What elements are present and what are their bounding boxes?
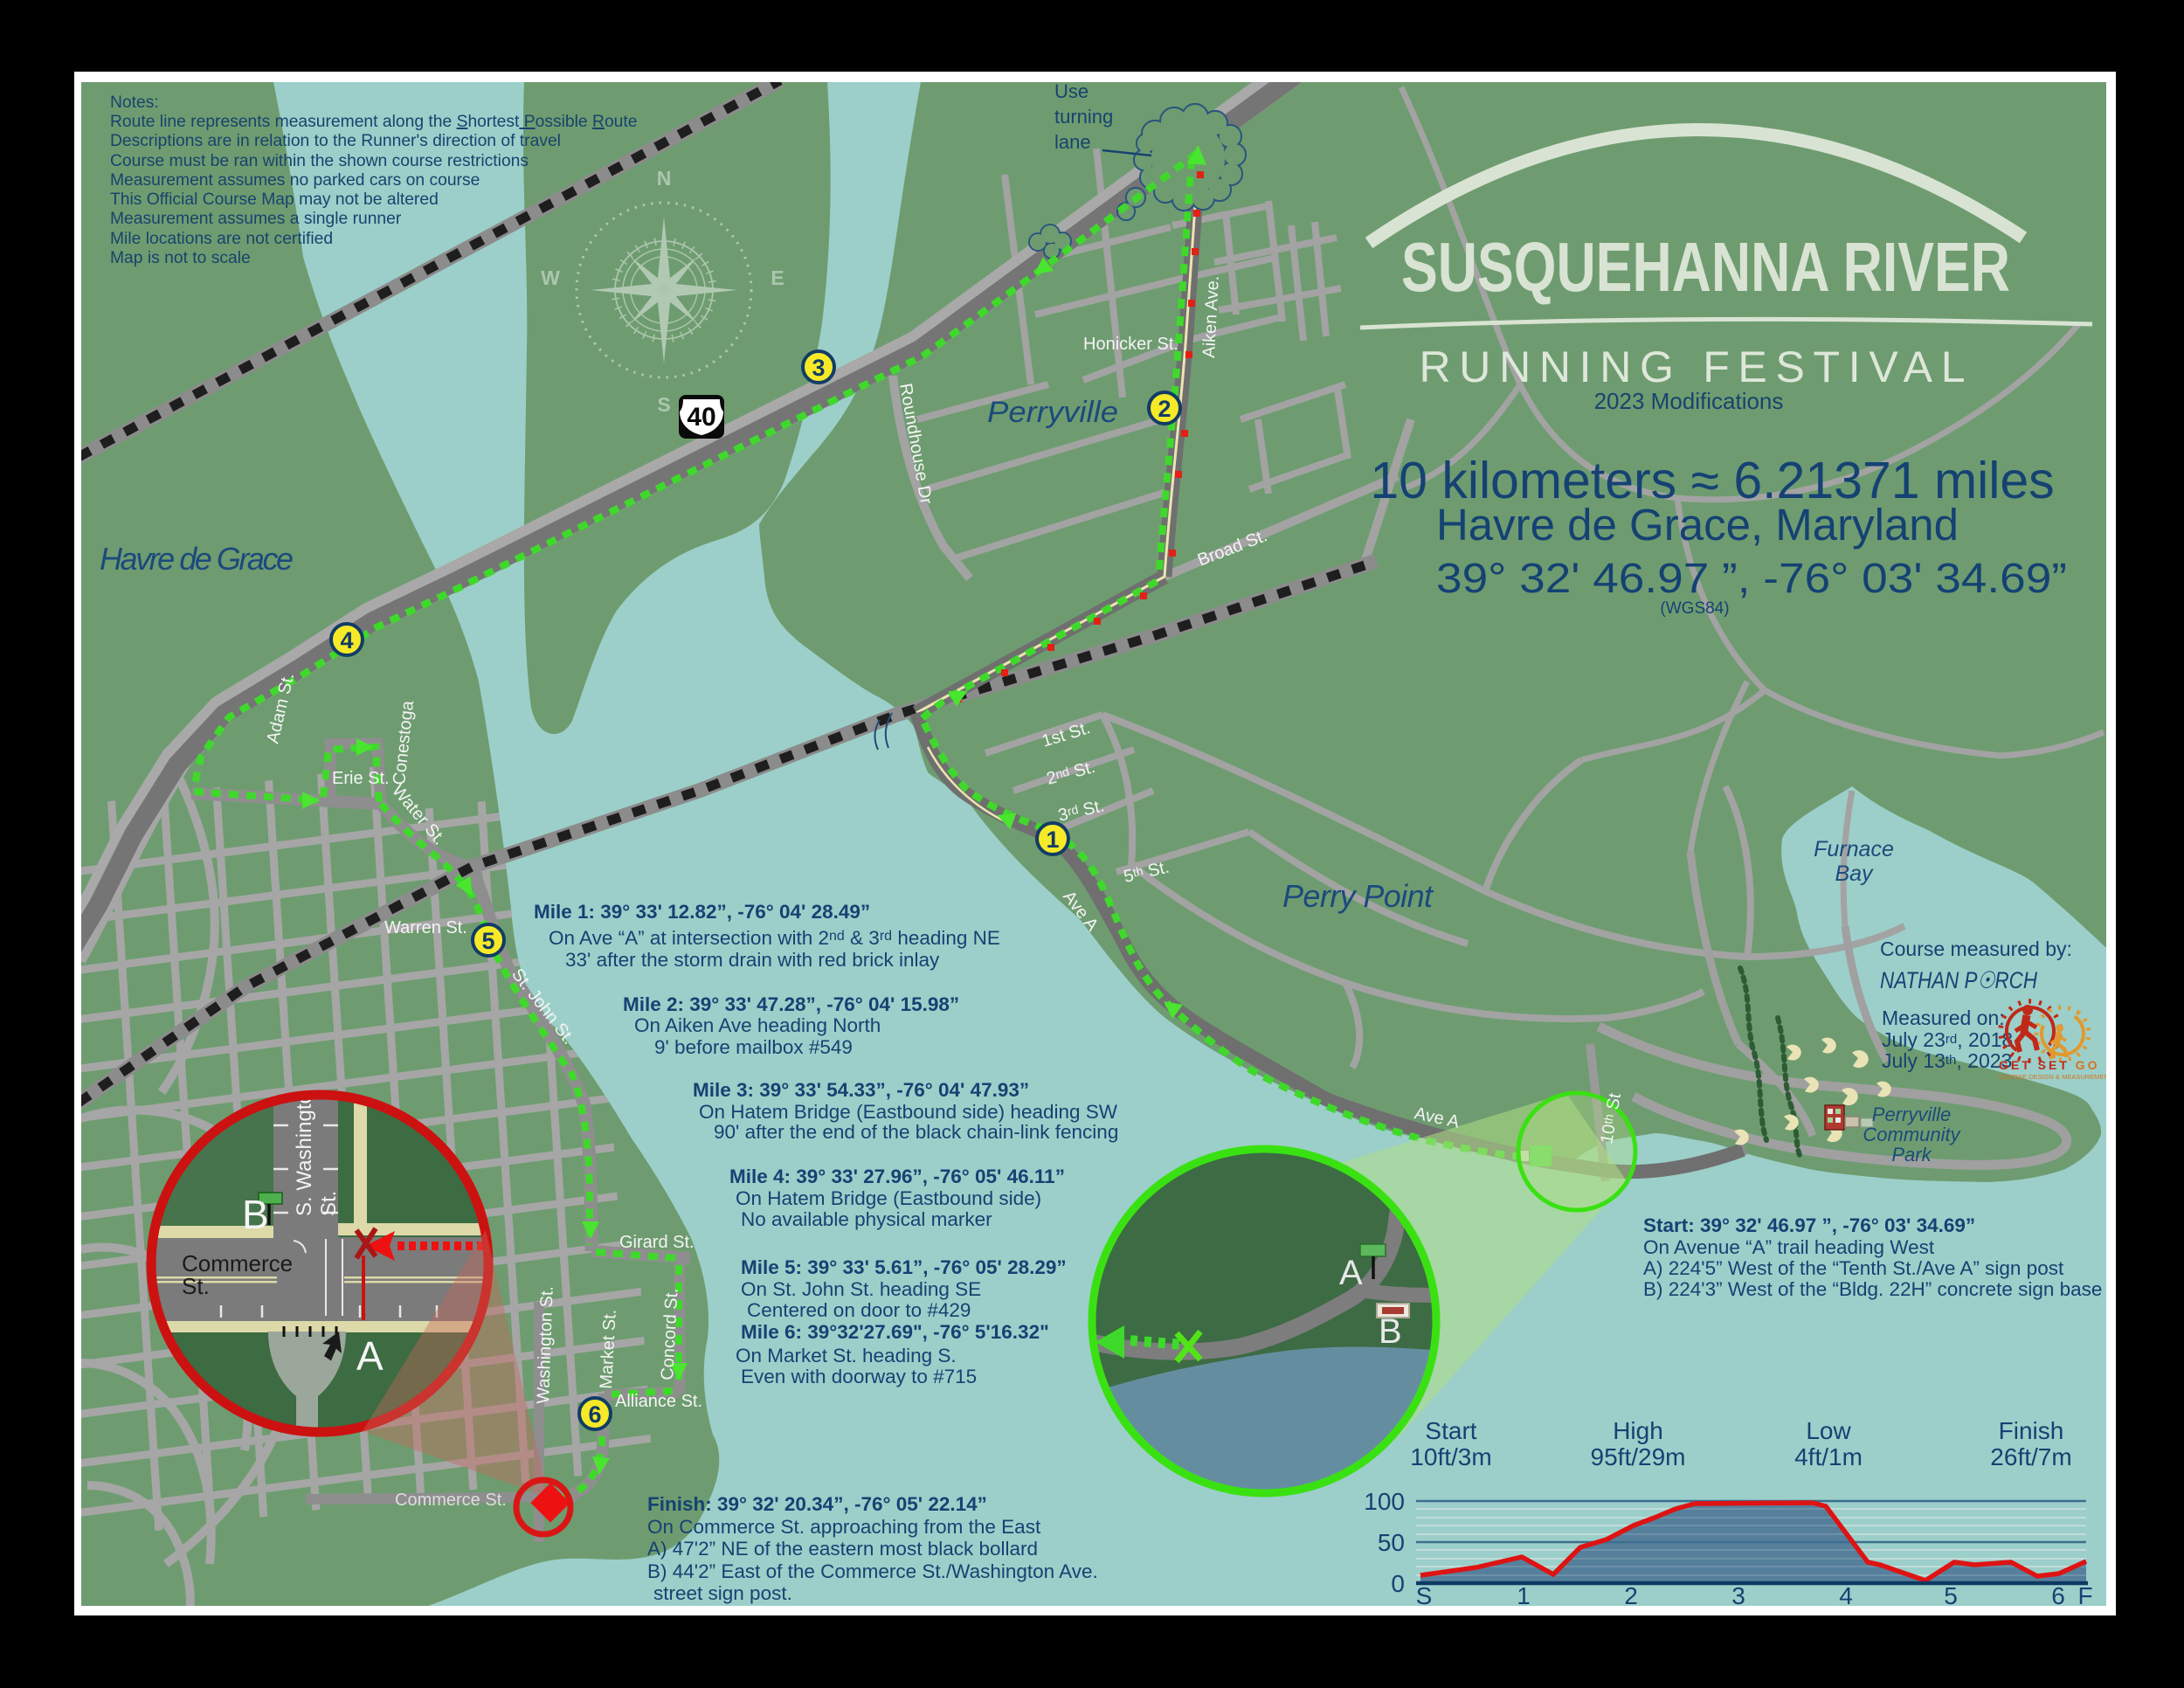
svg-text:W: W [541, 266, 560, 289]
svg-text:6: 6 [2051, 1582, 2065, 1609]
svg-text:1: 1 [1517, 1582, 1531, 1609]
svg-text:33' after the storm drain with: 33' after the storm drain with red brick… [565, 949, 940, 971]
svg-text:Finish: 39° 32' 20.34”, -76° 0: Finish: 39° 32' 20.34”, -76° 05' 22.14” [647, 1493, 987, 1515]
svg-text:On Hatem Bridge (Eastbound sid: On Hatem Bridge (Eastbound side) [736, 1187, 1041, 1209]
svg-text:Perryville: Perryville [1872, 1103, 1951, 1125]
svg-text:This Official Course Map may n: This Official Course Map may not be alte… [110, 190, 439, 209]
svg-text:2: 2 [1624, 1582, 1638, 1609]
svg-text:A) 47'2” NE of the eastern mos: A) 47'2” NE of the eastern most black bo… [647, 1538, 1038, 1560]
svg-text:Map is not to scale: Map is not to scale [110, 249, 251, 267]
svg-text:Mile 3: 39° 33' 54.33”, -76°: Mile 3: 39° 33' 54.33”, -76° 04' 47.93” [693, 1079, 1029, 1101]
svg-text:COURSE DESIGN & MEASUREMENT: COURSE DESIGN & MEASUREMENT [1999, 1073, 2113, 1081]
svg-text:N: N [657, 167, 672, 190]
svg-text:Mile 5: 39° 33' 5.61”, -76° 0: Mile 5: 39° 33' 5.61”, -76° 05' 28.29” [741, 1256, 1067, 1278]
svg-text:2023 Modifications: 2023 Modifications [1594, 388, 1784, 414]
svg-text:On Commerce St. approaching fr: On Commerce St. approaching from the Eas… [647, 1516, 1041, 1538]
svg-text:Erie St.: Erie St. [332, 769, 390, 788]
svg-text:High: High [1613, 1417, 1663, 1444]
svg-text:90' after the end of the black: 90' after the end of the black chain-lin… [714, 1121, 1118, 1143]
svg-text:Mile locations are not certifi: Mile locations are not certified [110, 230, 333, 248]
svg-text:SUSQUEHANNA RIVER: SUSQUEHANNA RIVER [1401, 228, 2010, 306]
svg-text:On Hatem Bridge (Eastbound sid: On Hatem Bridge (Eastbound side) heading… [699, 1101, 1118, 1123]
svg-text:E: E [771, 266, 784, 289]
svg-text:Mile 2: 39° 33' 47.28”, -76°: Mile 2: 39° 33' 47.28”, -76° 04' 15.98” [623, 993, 959, 1015]
svg-text:Honicker St.: Honicker St. [1083, 335, 1178, 354]
svg-text:Community: Community [1863, 1124, 1961, 1145]
svg-text:Alliance St.: Alliance St. [615, 1392, 702, 1411]
svg-text:(WGS84): (WGS84) [1660, 599, 1729, 618]
svg-text:40: 40 [687, 403, 715, 432]
svg-text:St.: St. [317, 1191, 341, 1216]
svg-text:Course must be ran within the: Course must be ran within the shown cour… [110, 152, 529, 170]
svg-text:2: 2 [1158, 396, 1171, 422]
svg-text:Mile 1: 39° 33' 12.82”, -76°: Mile 1: 39° 33' 12.82”, -76° 04' 28.49” [534, 901, 870, 923]
svg-text:Course measured by:: Course measured by: [1880, 937, 2072, 960]
svg-text:Notes:: Notes: [110, 93, 159, 112]
svg-text:Warren St.: Warren St. [384, 918, 467, 937]
svg-text:4: 4 [340, 627, 353, 654]
svg-text:9' before mailbox #549: 9' before mailbox #549 [654, 1036, 853, 1058]
svg-text:GET SET GO: GET SET GO [1999, 1058, 2100, 1072]
svg-text:A) 224'5” West of the “Tenth S: A) 224'5” West of the “Tenth St./Ave A” … [1643, 1257, 2064, 1279]
svg-text:Use: Use [1054, 80, 1089, 102]
svg-text:4ft/1m: 4ft/1m [1794, 1443, 1863, 1470]
svg-text:Furnace: Furnace [1814, 837, 1894, 861]
svg-text:6: 6 [588, 1401, 601, 1428]
svg-text:Perry Point: Perry Point [1282, 878, 1434, 914]
svg-text:10ft/3m: 10ft/3m [1410, 1443, 1491, 1470]
svg-text:4: 4 [1839, 1582, 1853, 1609]
svg-text:B: B [1379, 1312, 1402, 1351]
svg-text:5: 5 [1944, 1582, 1958, 1609]
svg-text:26ft/7m: 26ft/7m [1990, 1443, 2071, 1470]
svg-text:Park: Park [1891, 1144, 1932, 1166]
svg-text:NATHAN P☉RCH: NATHAN P☉RCH [1880, 967, 2037, 993]
svg-text:Havre de Grace, Maryland: Havre de Grace, Maryland [1436, 500, 1959, 550]
svg-text:turning: turning [1054, 106, 1113, 128]
svg-text:Mile 4: 39° 33' 27.96”, -76°: Mile 4: 39° 33' 27.96”, -76° 05' 46.11” [729, 1166, 1065, 1187]
svg-text:50: 50 [1378, 1529, 1405, 1556]
svg-text:On Ave “A” at intersection wit: On Ave “A” at intersection with 2nd & 3r… [549, 927, 1000, 949]
svg-text:On Market St. heading S.: On Market St. heading S. [736, 1345, 957, 1366]
svg-text:Start: Start [1425, 1417, 1476, 1444]
svg-text:On Aiken Ave heading North: On Aiken Ave heading North [634, 1014, 881, 1036]
svg-text:Start: 39° 32' 46.97 ”, -76° 0: Start: 39° 32' 46.97 ”, -76° 03' 34.69” [1643, 1214, 1975, 1236]
svg-text:Perryville: Perryville [987, 396, 1118, 429]
svg-text:Route line represents measurem: Route line represents measurement along … [110, 113, 637, 131]
svg-text:No available physical marker: No available physical marker [741, 1208, 992, 1230]
svg-text:RUNNING FESTIVAL: RUNNING FESTIVAL [1420, 342, 1966, 391]
svg-text:On Avenue “A” trail heading We: On Avenue “A” trail heading West [1643, 1236, 1935, 1258]
svg-text:Measurement assumes no parked: Measurement assumes no parked cars on co… [110, 171, 480, 190]
svg-text:Bay: Bay [1835, 861, 1874, 886]
svg-text:Havre de Grace: Havre de Grace [100, 541, 294, 577]
svg-text:39° 32' 46.97 ”, -76° 03' 34.6: 39° 32' 46.97 ”, -76° 03' 34.69” [1436, 556, 2067, 602]
svg-text:B) 44'2” East of the Commerce: B) 44'2” East of the Commerce St./Washin… [647, 1560, 1098, 1582]
svg-text:Commerce St.: Commerce St. [395, 1491, 507, 1510]
svg-text:A: A [356, 1333, 384, 1379]
svg-text:1: 1 [1046, 827, 1059, 853]
svg-text:95ft/29m: 95ft/29m [1591, 1443, 1686, 1470]
svg-text:S: S [1416, 1582, 1433, 1609]
svg-text:Finish: Finish [1999, 1417, 2064, 1444]
svg-text:S: S [657, 393, 670, 416]
svg-text:Measurement assumes a single r: Measurement assumes a single runner [110, 210, 402, 228]
svg-text:3: 3 [812, 355, 825, 381]
svg-text:Mile 6: 39°32'27.69", -76° 5': Mile 6: 39°32'27.69", -76° 5'16.32" [741, 1321, 1049, 1343]
svg-text:Girard St.: Girard St. [619, 1233, 695, 1252]
svg-text:3: 3 [1731, 1582, 1745, 1609]
svg-text:Low: Low [1806, 1417, 1851, 1444]
svg-text:Centered on door to #429: Centered on door to #429 [747, 1299, 971, 1321]
svg-text:On St. John St. heading SE: On St. John St. heading SE [741, 1278, 981, 1300]
svg-text:lane: lane [1054, 131, 1091, 153]
svg-text:St.: St. [182, 1273, 210, 1299]
svg-text:street sign post.: street sign post. [653, 1582, 792, 1604]
svg-text:Even with doorway to #715: Even with doorway to #715 [741, 1366, 977, 1387]
svg-text:F: F [2077, 1582, 2092, 1609]
svg-text:A: A [1339, 1254, 1363, 1292]
svg-text:5: 5 [481, 928, 494, 954]
svg-text:Measured on:: Measured on: [1882, 1007, 2005, 1029]
svg-text:Washington St.: Washington St. [534, 1286, 557, 1405]
svg-text:B: B [242, 1192, 269, 1237]
svg-text:B) 224'3” West of the “Bldg. 2: B) 224'3” West of the “Bldg. 22H” concre… [1643, 1278, 2102, 1300]
svg-text:Descriptions are in relation t: Descriptions are in relation to the Runn… [110, 132, 561, 150]
svg-text:100: 100 [1364, 1488, 1405, 1515]
svg-text:0: 0 [1391, 1570, 1405, 1597]
